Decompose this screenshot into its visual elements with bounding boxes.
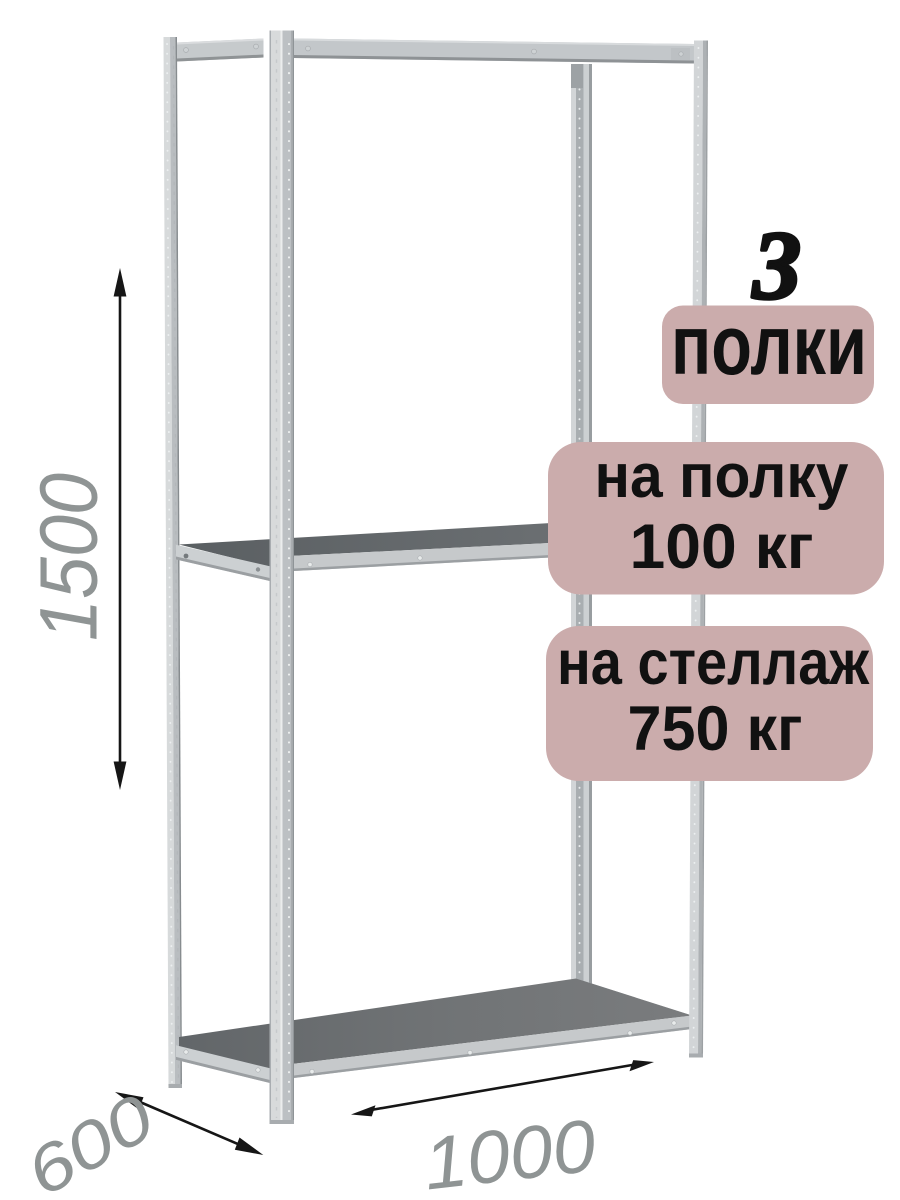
svg-text:1500: 1500 (24, 473, 115, 641)
svg-text:полки: полки (671, 298, 867, 392)
svg-text:100 кг: 100 кг (630, 512, 814, 582)
svg-text:750 кг: 750 кг (628, 694, 803, 764)
svg-text:на полку: на полку (595, 442, 849, 511)
svg-text:на стеллаж: на стеллаж (557, 628, 870, 698)
